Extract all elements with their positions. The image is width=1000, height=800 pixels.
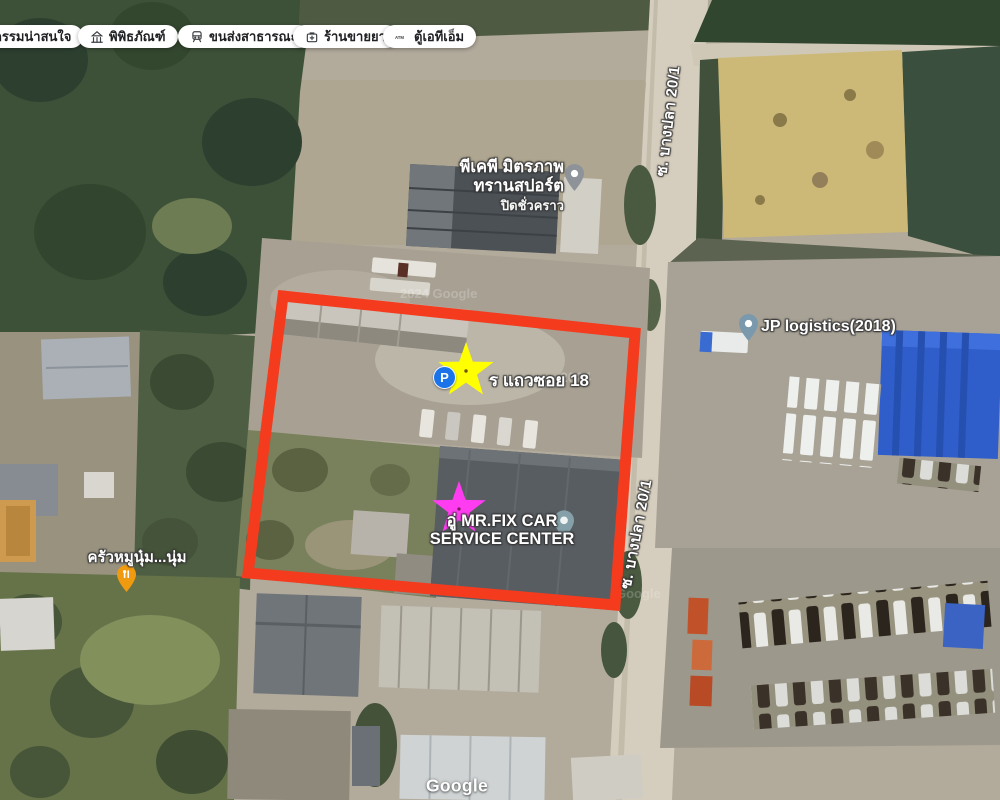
chip-label: ขนส่งสาธารณะ [209, 26, 298, 47]
chip-interesting-activities[interactable]: กรรมน่าสนใจ [0, 25, 83, 48]
pkp-line1: พีเคพี มิตรภาพ [460, 158, 565, 177]
restaurant-pin[interactable] [117, 565, 136, 592]
mrfix-line1: อู่ MR.FIX CAR [430, 512, 575, 530]
chip-label: ร้านขายยา [324, 26, 386, 47]
restaurant-label[interactable]: ครัวหมูนุ๋ม...นุ่ม [87, 545, 186, 569]
mrfix-label[interactable]: อู่ MR.FIX CAR SERVICE CENTER [430, 512, 575, 548]
parking-row-label[interactable]: ร แถวซอย 18 [489, 367, 589, 394]
chip-museums[interactable]: พิพิธภัณฑ์ [78, 25, 178, 48]
map-pin-icon [739, 314, 758, 341]
chip-label: พิพิธภัณฑ์ [109, 26, 166, 47]
map-canvas[interactable]: 2024 Google 2024 Google [0, 0, 1000, 800]
museum-icon [90, 30, 104, 44]
restaurant-pin-icon [117, 565, 136, 592]
parking-icon[interactable]: P [433, 366, 456, 389]
satellite-imagery[interactable] [0, 0, 1000, 800]
jp-logistics-label[interactable]: JP logistics(2018) [761, 318, 896, 336]
chip-label: ตู้เอทีเอ็ม [414, 26, 464, 47]
imagery-watermark-top: 2024 Google [400, 286, 477, 301]
parking-icon-letter: P [440, 370, 449, 385]
chip-label: กรรมน่าสนใจ [0, 26, 71, 47]
atm-icon: ATM [395, 30, 409, 44]
pkp-line2: ทรานสปอร์ต [460, 177, 565, 196]
pharmacy-icon [305, 30, 319, 44]
chip-public-transport[interactable]: ขนส่งสาธารณะ [178, 25, 310, 48]
logistics-yard [655, 256, 1000, 548]
atm-icon-text: ATM [395, 35, 404, 40]
jp-logistics-pin[interactable] [739, 314, 758, 341]
pkp-status: ปิดชั่วคราว [460, 196, 565, 215]
filter-chips-bar: กรรมน่าสนใจ พิพิธภัณฑ์ ขน [0, 0, 1000, 60]
parking-lot [660, 548, 1000, 748]
pkp-transport-pin[interactable] [565, 164, 584, 191]
map-pin-icon [565, 164, 584, 191]
transit-icon [190, 30, 204, 44]
chip-atms[interactable]: ATM ตู้เอทีเอ็ม [383, 25, 476, 48]
mrfix-line2: SERVICE CENTER [430, 530, 575, 548]
google-logo[interactable]: Google [426, 776, 488, 797]
pkp-transport-label[interactable]: พีเคพี มิตรภาพ ทรานสปอร์ต ปิดชั่วคราว [460, 158, 565, 215]
